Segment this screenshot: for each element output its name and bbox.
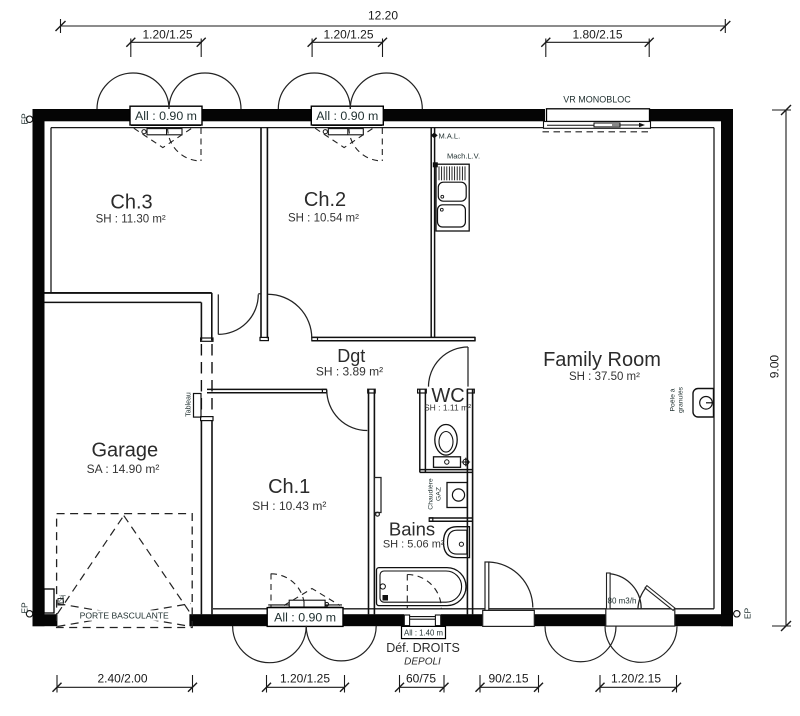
svg-text:Dgt: Dgt [337,346,365,366]
svg-text:M.A.L.: M.A.L. [439,131,461,140]
svg-text:Ch.3: Ch.3 [110,192,152,214]
svg-text:SH : 1.11 m²: SH : 1.11 m² [424,402,471,412]
svg-text:SH : 11.30 m²: SH : 11.30 m² [96,214,166,226]
svg-text:PORTE BASCULANTE: PORTE BASCULANTE [80,611,169,621]
svg-text:Poêle à: Poêle à [670,388,677,411]
svg-text:Garage: Garage [91,440,158,462]
svg-text:VR MONOBLOC: VR MONOBLOC [563,95,631,105]
svg-text:Tableau: Tableau [186,392,193,417]
svg-text:Family Room: Family Room [543,349,661,371]
svg-text:All : 0.90 m: All : 0.90 m [274,610,336,624]
svg-text:2.40/2.00: 2.40/2.00 [97,672,147,686]
svg-text:1.80/2.15: 1.80/2.15 [572,28,622,42]
svg-text:90/2.15: 90/2.15 [488,672,528,686]
svg-text:12.20: 12.20 [368,9,398,23]
svg-text:SH : 10.54 m²: SH : 10.54 m² [288,213,359,225]
svg-text:Bains: Bains [389,519,435,540]
svg-text:Ch.2: Ch.2 [304,189,346,211]
svg-text:1.20/1.25: 1.20/1.25 [142,28,192,42]
svg-text:Ch.1: Ch.1 [268,476,310,498]
svg-text:1.20/2.15: 1.20/2.15 [611,672,661,686]
svg-text:All : 1.40 m: All : 1.40 m [404,628,443,637]
svg-text:All : 0.90 m: All : 0.90 m [316,109,378,123]
svg-text:EP: EP [742,608,752,620]
svg-text:DEPOLI: DEPOLI [404,657,441,668]
svg-text:SH : 3.89 m²: SH : 3.89 m² [316,365,383,379]
svg-text:SH : 5.06 m²: SH : 5.06 m² [383,539,445,551]
svg-text:SH : 10.43 m²: SH : 10.43 m² [252,499,326,513]
svg-text:GAZ: GAZ [436,487,443,501]
svg-text:SH : 37.50 m²: SH : 37.50 m² [569,371,640,383]
svg-text:Mach.L.V.: Mach.L.V. [447,152,480,161]
svg-text:EP: EP [19,602,29,614]
svg-text:60/75: 60/75 [406,672,436,686]
svg-text:9.00: 9.00 [768,355,782,379]
svg-text:80 m3/h: 80 m3/h [608,597,637,606]
svg-text:Dsj: Dsj [60,595,66,604]
svg-text:granulés: granulés [678,386,685,413]
svg-text:EP: EP [19,113,29,125]
svg-text:1.20/1.25: 1.20/1.25 [323,28,373,42]
svg-text:1.20/1.25: 1.20/1.25 [280,672,330,686]
svg-text:Chaudière: Chaudière [428,478,435,510]
svg-text:All : 0.90 m: All : 0.90 m [135,109,197,123]
svg-text:SA : 14.90 m²: SA : 14.90 m² [87,462,160,476]
svg-text:Déf. DROITS: Déf. DROITS [386,641,460,655]
